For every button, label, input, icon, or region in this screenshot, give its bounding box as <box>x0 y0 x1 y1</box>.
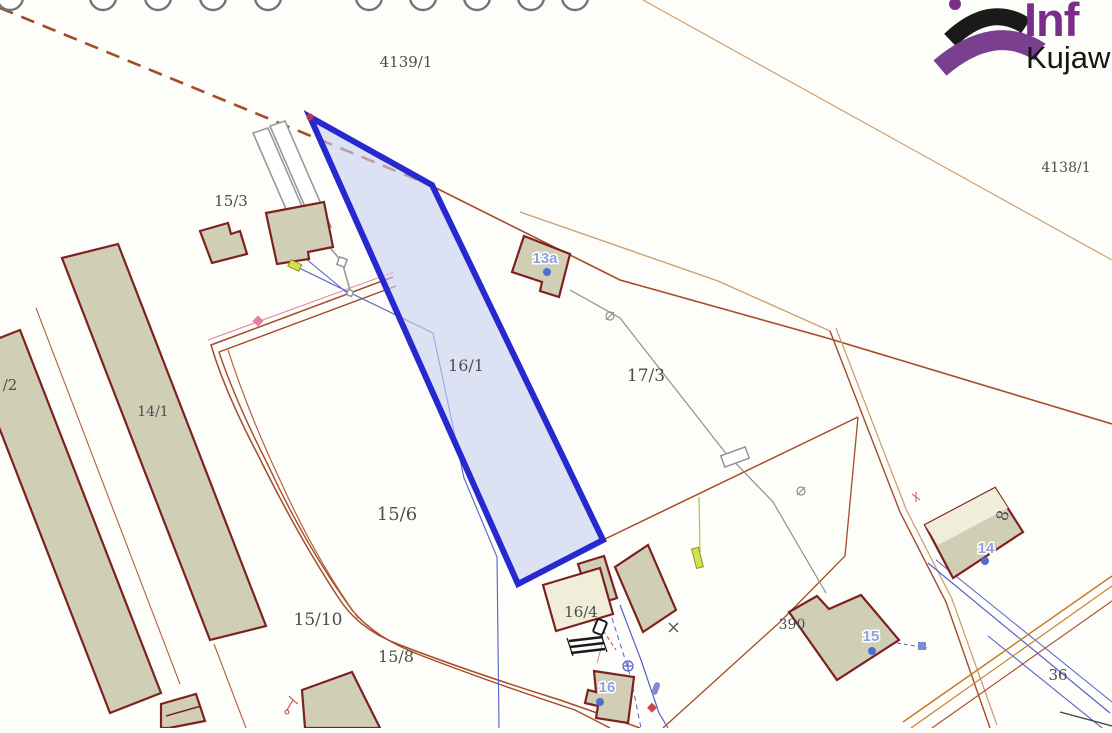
parcel-label-15-6: 15/6 <box>377 504 417 525</box>
building-bottom-center <box>302 672 380 728</box>
yellowgreen-box-east <box>692 547 704 568</box>
boundary-line-topright <box>643 0 1112 260</box>
circle-slash-symbols <box>606 312 805 495</box>
circled-plus-cross <box>624 662 632 670</box>
parcel-label-16-4: 16/4 <box>564 603 598 621</box>
parcel-label-4138-1: 4138/1 <box>1041 160 1090 176</box>
parcel-label-4139-1: 4139/1 <box>380 53 433 71</box>
building-point-16 <box>596 698 604 706</box>
pink-utility-line <box>208 272 394 340</box>
boundary-16-17 <box>603 417 858 540</box>
red-branch-symbol <box>285 696 298 714</box>
gray-rect-symbol <box>721 447 750 467</box>
building-label-16: 16 <box>599 679 616 696</box>
building-15-3-small <box>200 223 247 263</box>
parcel-label-15-10: 15/10 <box>294 610 343 630</box>
strip-boundary-2 <box>214 644 246 728</box>
red-tick-markers <box>912 492 920 502</box>
parcel-label-17-3: 17/3 <box>627 366 665 386</box>
map-stage: 4139/14138/115/3/214/116/117/315/615/101… <box>0 0 1112 728</box>
building-tall-east <box>615 545 676 632</box>
orange-line-1 <box>903 576 1112 722</box>
parcel-label-16-1: 16/1 <box>448 356 484 375</box>
parcel-label-14-1: 14/1 <box>137 404 168 420</box>
blue-capsule-symbol <box>651 681 661 695</box>
parcel-label-36: 36 <box>1048 666 1067 684</box>
orange-line-2 <box>911 586 1112 728</box>
building-label-14: 14 <box>978 540 995 557</box>
parcel-label-390: 390 <box>779 617 806 633</box>
parcel-vertex-marker <box>307 114 314 121</box>
connector-box <box>337 257 347 267</box>
building-label-15: 15 <box>863 628 880 645</box>
parcel-label-slash2: /2 <box>3 376 18 394</box>
building-label-13a: 13a <box>532 250 558 267</box>
blue-square-symbol <box>918 642 926 650</box>
dark-line-corner <box>1060 712 1112 726</box>
building-15-3-large <box>266 202 333 264</box>
parcel-label-15-3: 15/3 <box>214 192 248 210</box>
building-15 <box>789 595 899 680</box>
x-marker <box>669 623 678 632</box>
yellowgreen-line <box>699 497 700 552</box>
building-point-14 <box>981 557 989 565</box>
building-point-13a <box>543 268 551 276</box>
top-circle-symbols <box>0 0 588 10</box>
cadastral-map-canvas[interactable]: 4139/14138/115/3/214/116/117/315/615/101… <box>0 0 1112 728</box>
highlighted-parcel-16-1[interactable] <box>310 117 603 584</box>
utility-blue-southeast-1 <box>928 563 1110 713</box>
connector-node <box>347 290 353 296</box>
steps-symbol <box>567 634 607 656</box>
building-point-15 <box>868 647 876 655</box>
parcel-label-15-8: 15/8 <box>378 647 414 666</box>
pink-diamond-marker <box>252 315 263 326</box>
